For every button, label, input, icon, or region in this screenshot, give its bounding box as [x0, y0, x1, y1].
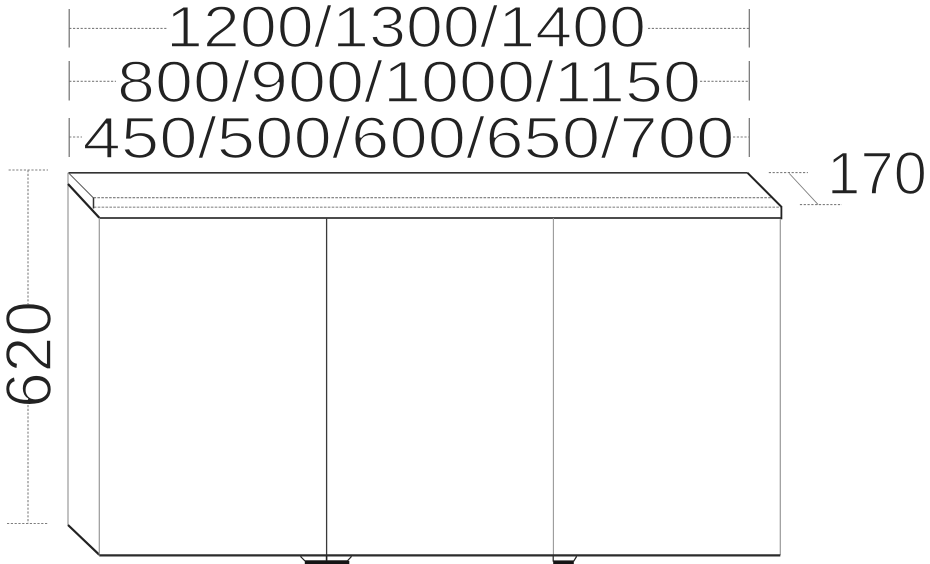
svg-text:450/500/600/650/700: 450/500/600/650/700: [83, 106, 735, 171]
svg-text:170: 170: [827, 140, 927, 207]
svg-text:620: 620: [0, 301, 65, 408]
